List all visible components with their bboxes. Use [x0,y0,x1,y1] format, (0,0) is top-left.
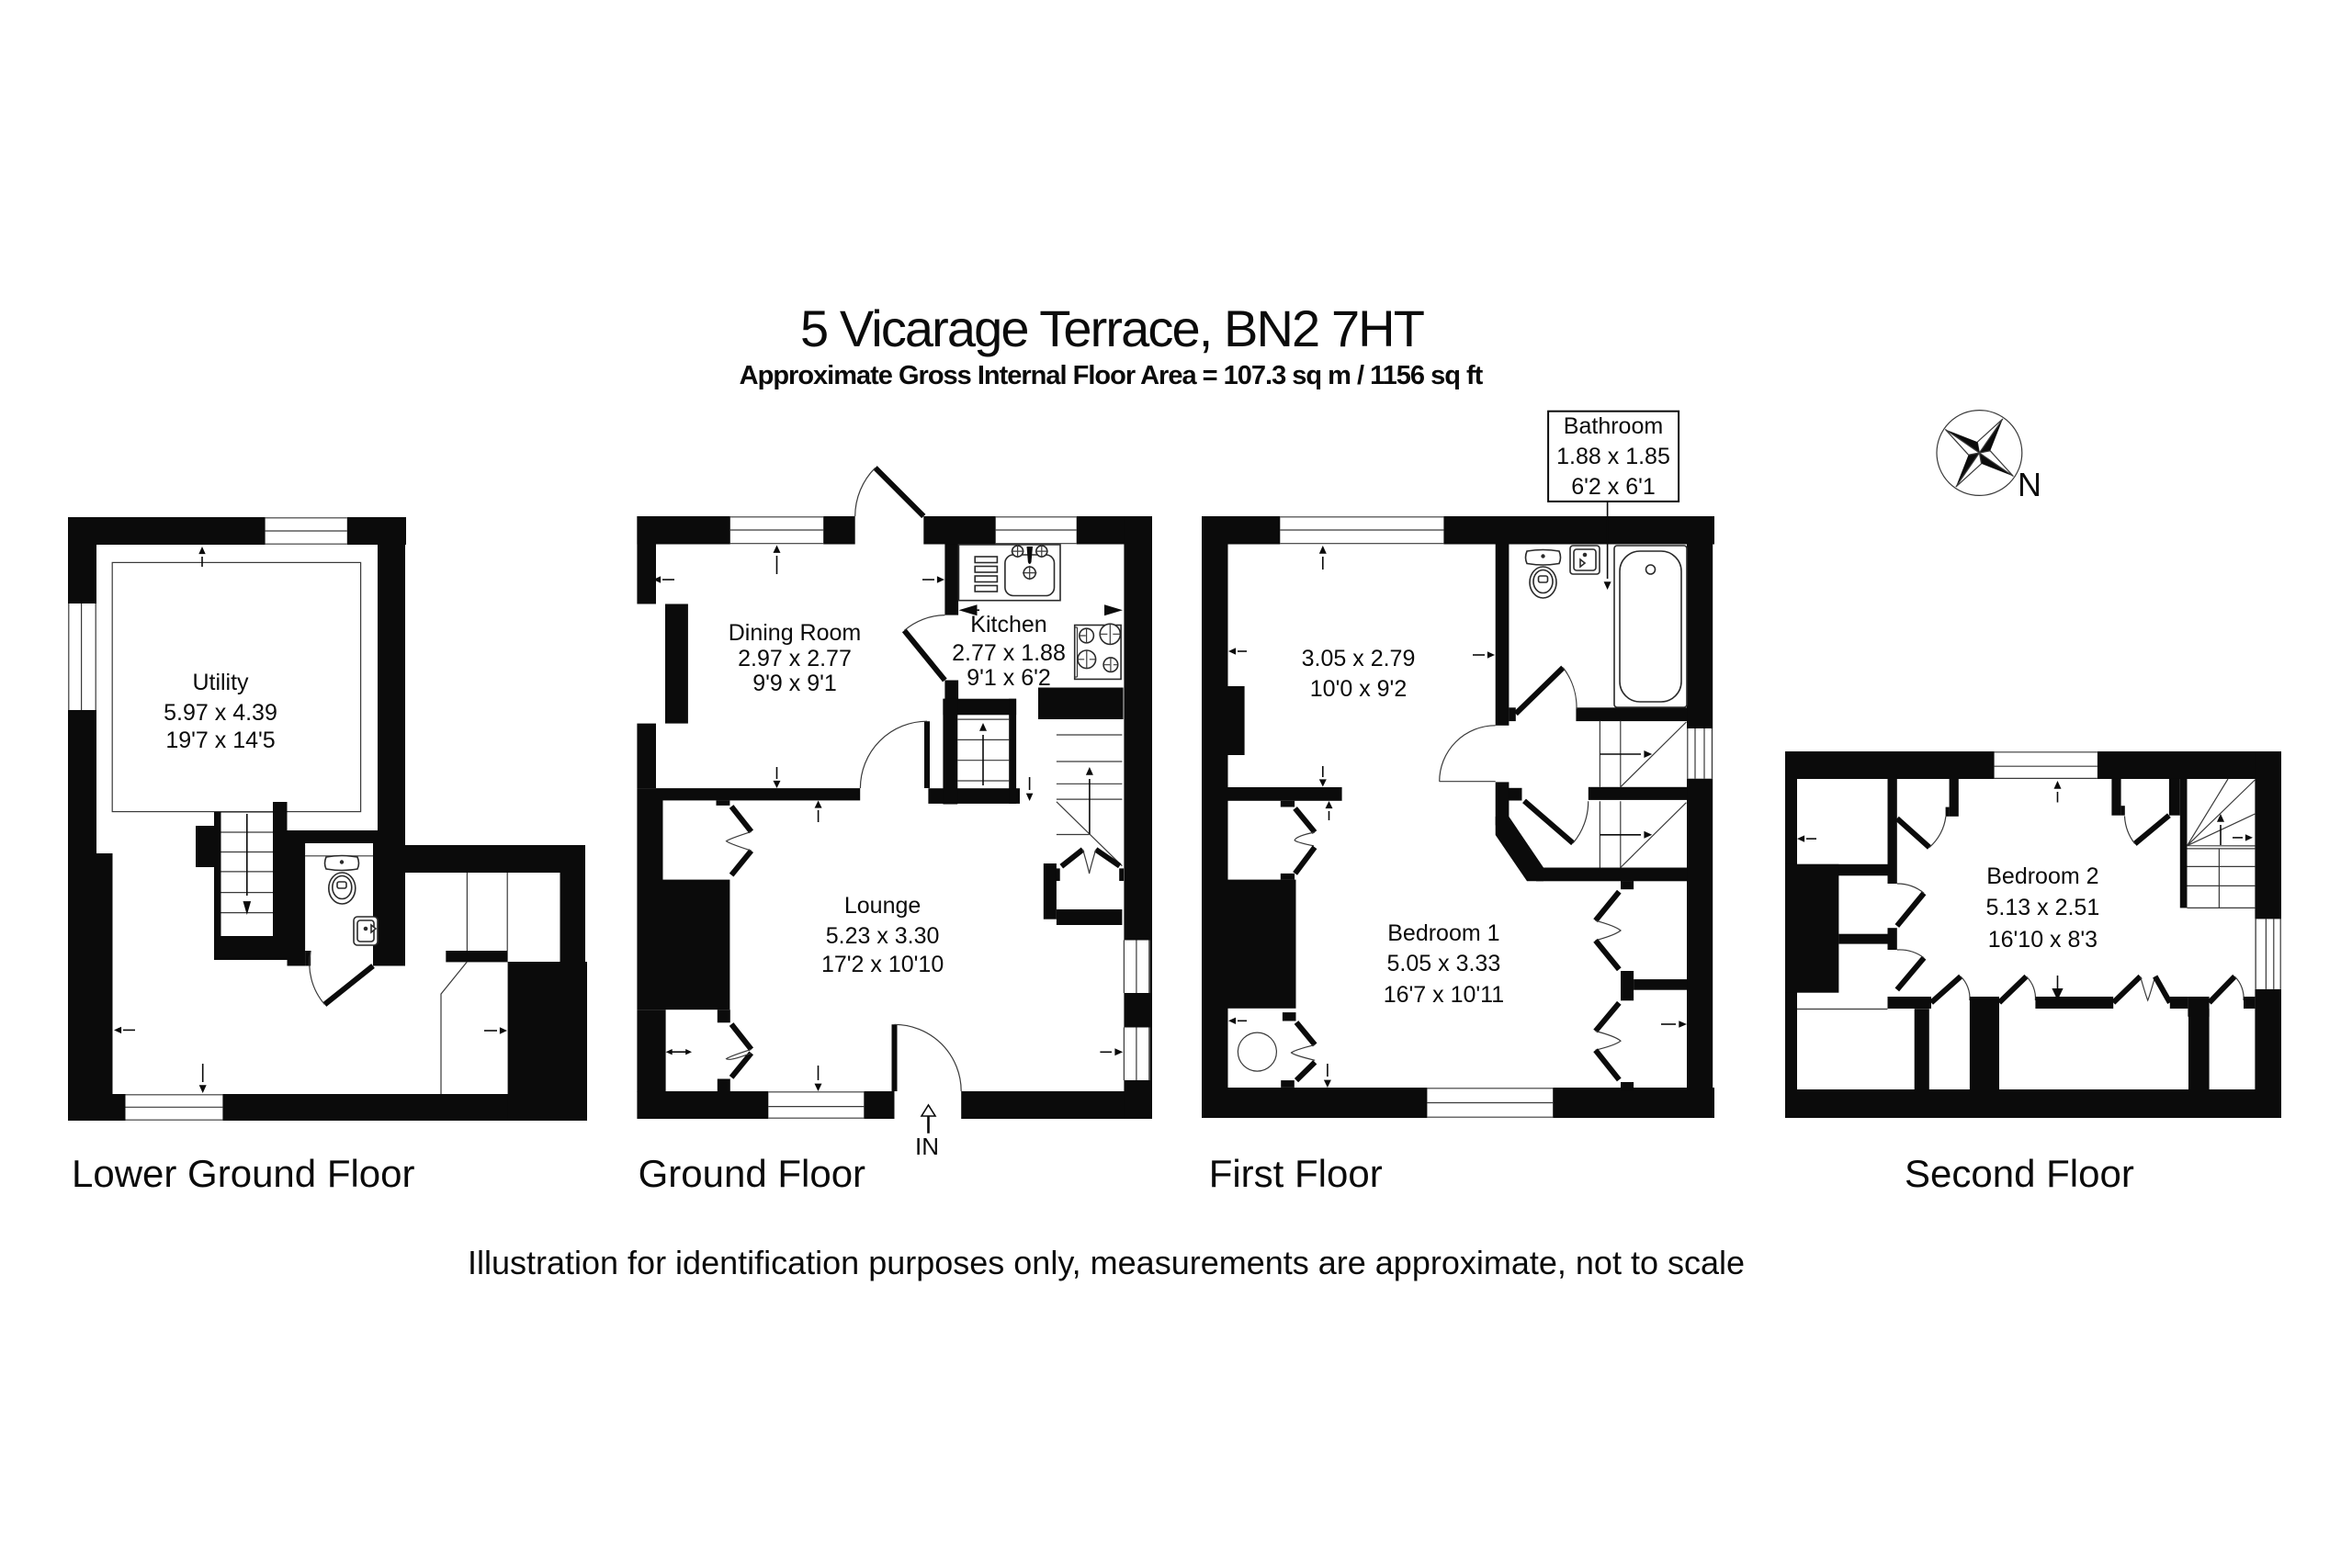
svg-text:Ground Floor: Ground Floor [639,1152,865,1195]
svg-text:19'7 x 14'5: 19'7 x 14'5 [165,728,275,753]
svg-text:Utility: Utility [192,670,249,695]
svg-text:5 Vicarage Terrace, BN2 7HT: 5 Vicarage Terrace, BN2 7HT [800,299,1424,357]
svg-text:1.88 x 1.85: 1.88 x 1.85 [1556,444,1670,469]
svg-text:9'9 x 9'1: 9'9 x 9'1 [752,671,837,696]
svg-text:9'1 x 6'2: 9'1 x 6'2 [967,665,1051,691]
svg-text:Illustration for identificatio: Illustration for identification purposes… [468,1244,1745,1281]
svg-text:Approximate Gross Internal Flo: Approximate Gross Internal Floor Area = … [740,361,1484,390]
svg-text:6'2 x 6'1: 6'2 x 6'1 [1571,474,1656,500]
svg-text:Lounge: Lounge [844,893,921,919]
svg-text:5.05 x 3.33: 5.05 x 3.33 [1387,951,1501,976]
svg-text:Dining Room: Dining Room [729,620,862,646]
svg-text:5.97 x 4.39: 5.97 x 4.39 [164,700,277,726]
svg-text:5.13 x 2.51: 5.13 x 2.51 [1986,895,2100,920]
svg-text:3.05 x 2.79: 3.05 x 2.79 [1302,646,1416,671]
svg-text:10'0 x 9'2: 10'0 x 9'2 [1310,676,1407,702]
svg-text:Bedroom 1: Bedroom 1 [1387,920,1499,946]
svg-text:Bedroom 2: Bedroom 2 [1986,863,2098,889]
svg-text:Kitchen: Kitchen [970,612,1046,637]
svg-text:Lower Ground Floor: Lower Ground Floor [72,1152,415,1195]
svg-text:Bathroom: Bathroom [1564,413,1663,439]
svg-text:2.77 x 1.88: 2.77 x 1.88 [952,640,1066,666]
svg-text:16'10 x 8'3: 16'10 x 8'3 [1988,927,2098,953]
svg-text:N: N [2018,466,2041,503]
svg-text:2.97 x 2.77: 2.97 x 2.77 [738,646,852,671]
svg-text:IN: IN [915,1133,939,1160]
svg-text:17'2 x 10'10: 17'2 x 10'10 [821,952,944,977]
svg-text:First Floor: First Floor [1209,1152,1383,1195]
svg-text:5.23 x 3.30: 5.23 x 3.30 [826,923,940,949]
svg-text:16'7 x 10'11: 16'7 x 10'11 [1384,982,1504,1008]
svg-text:Second Floor: Second Floor [1905,1152,2134,1195]
